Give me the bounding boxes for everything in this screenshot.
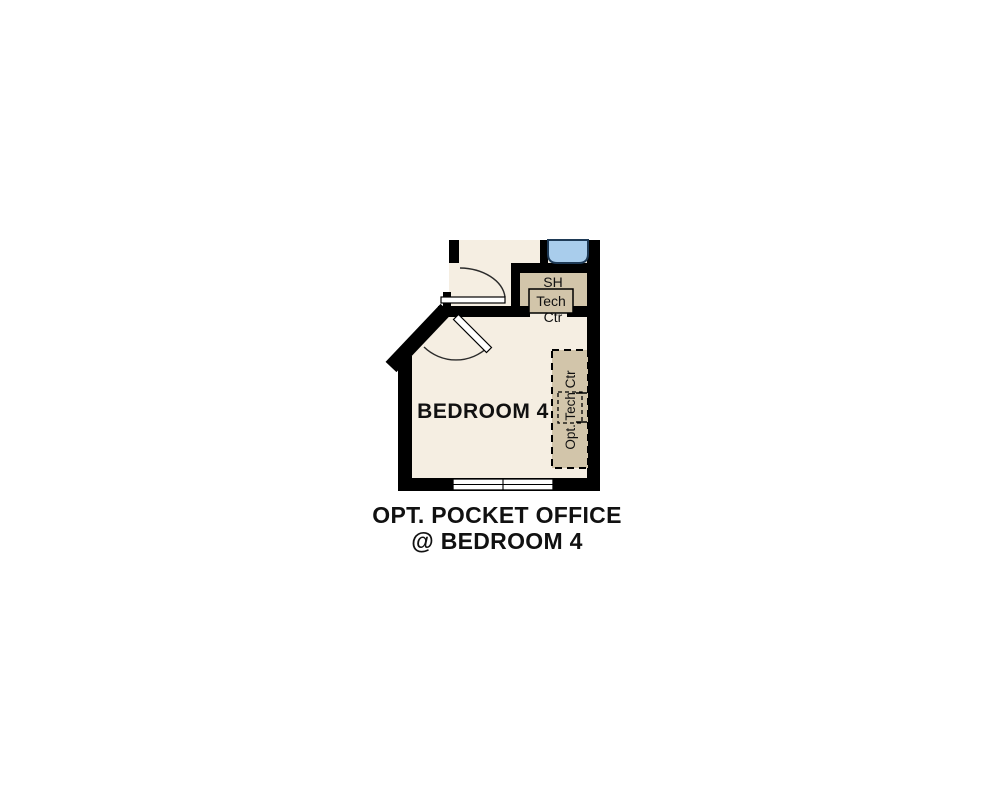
sink-icon [548, 240, 588, 263]
floor-plan-canvas: SH Tech Ctr BEDROOM 4 Opt. Tech Ctr OPT.… [0, 0, 1000, 800]
caption-line1: OPT. POCKET OFFICE [372, 502, 621, 528]
wall-sink-left [540, 240, 548, 265]
wall-left [398, 356, 412, 481]
tech-center-label-line1: Tech [536, 293, 566, 309]
floor-plan-page: SH Tech Ctr BEDROOM 4 Opt. Tech Ctr OPT.… [0, 0, 1000, 800]
window-icon [453, 479, 553, 490]
shelf-label: SH [543, 274, 562, 290]
wall-upper-left [438, 306, 530, 317]
room-label: BEDROOM 4 [417, 400, 549, 423]
caption-line2: @ BEDROOM 4 [411, 528, 582, 554]
wall-closet-left [511, 263, 520, 308]
wall-top-left-stub [449, 240, 459, 263]
opt-tech-center-label: Opt. Tech Ctr [563, 370, 578, 450]
tech-center-label-line2: Ctr [544, 309, 563, 325]
wall-top-band [511, 263, 600, 273]
